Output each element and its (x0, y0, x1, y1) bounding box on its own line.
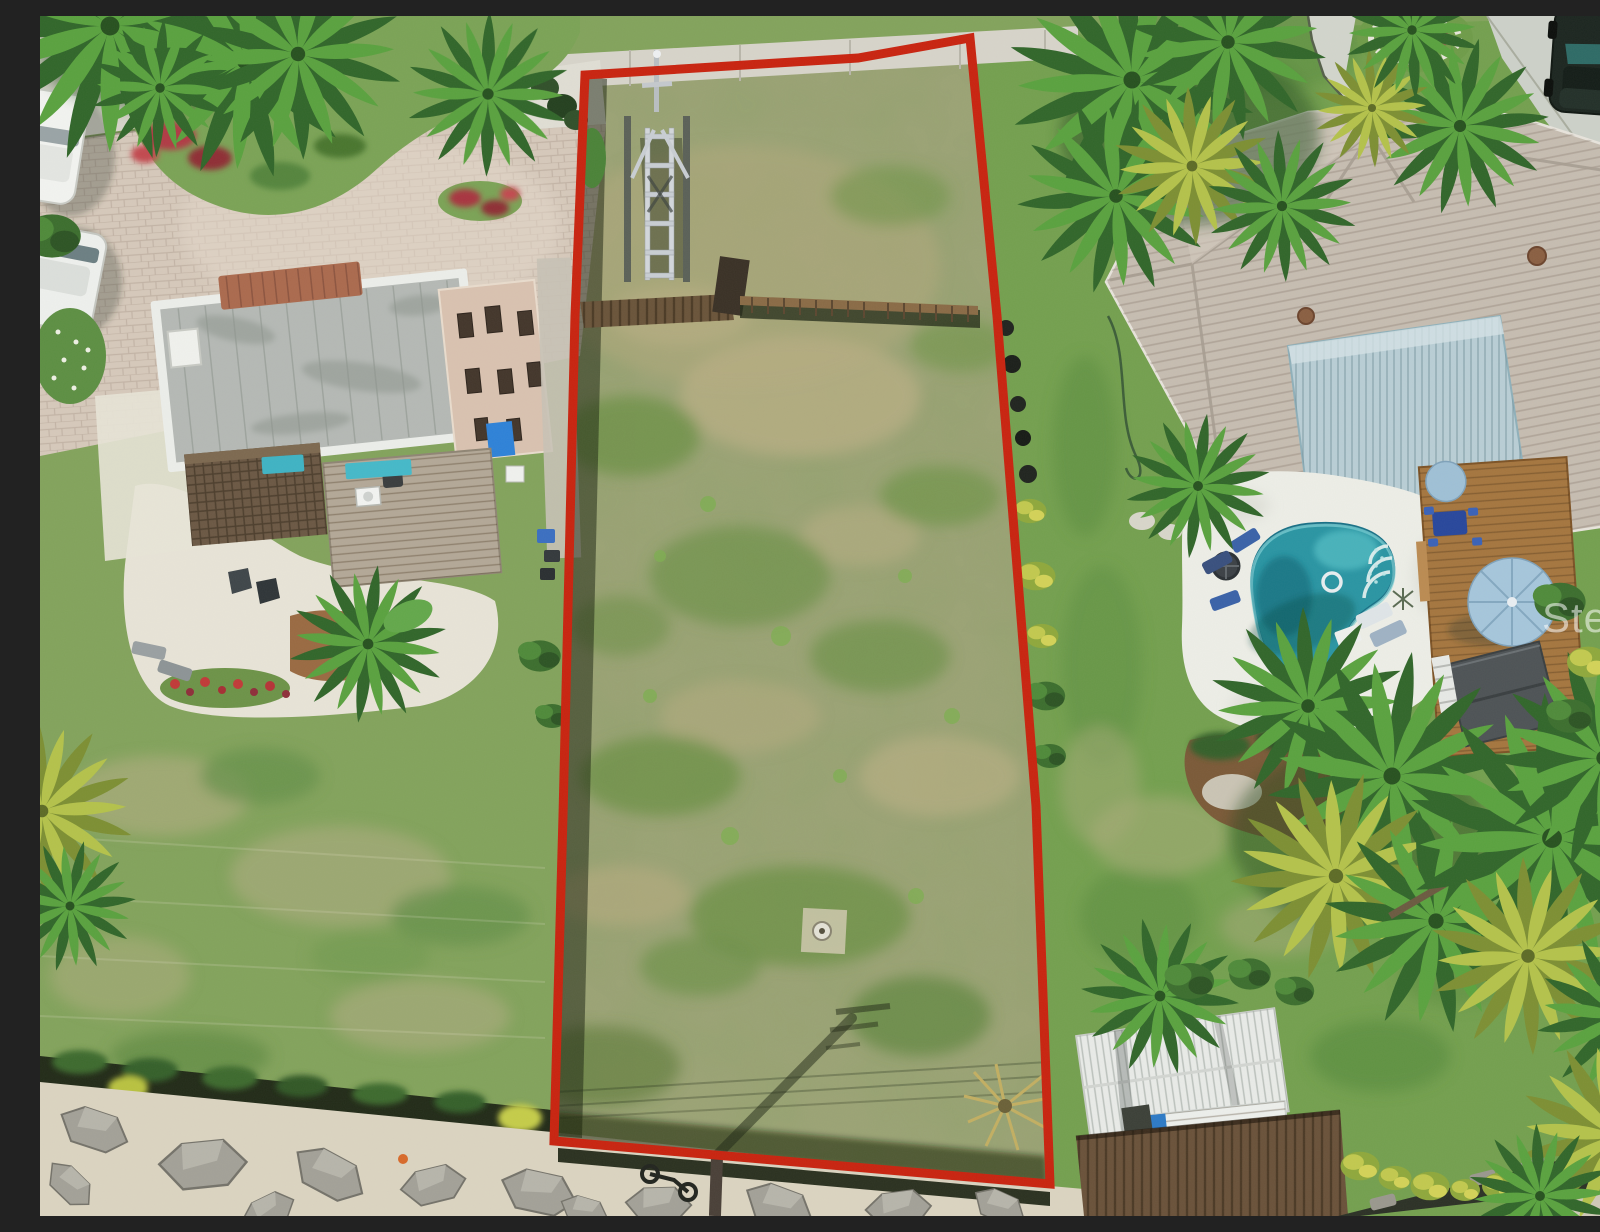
aerial-photo-canvas: StellarMLS (40, 16, 1600, 1216)
aerial-photo: StellarMLS (40, 16, 1600, 1216)
photo-grain (40, 16, 1600, 1216)
